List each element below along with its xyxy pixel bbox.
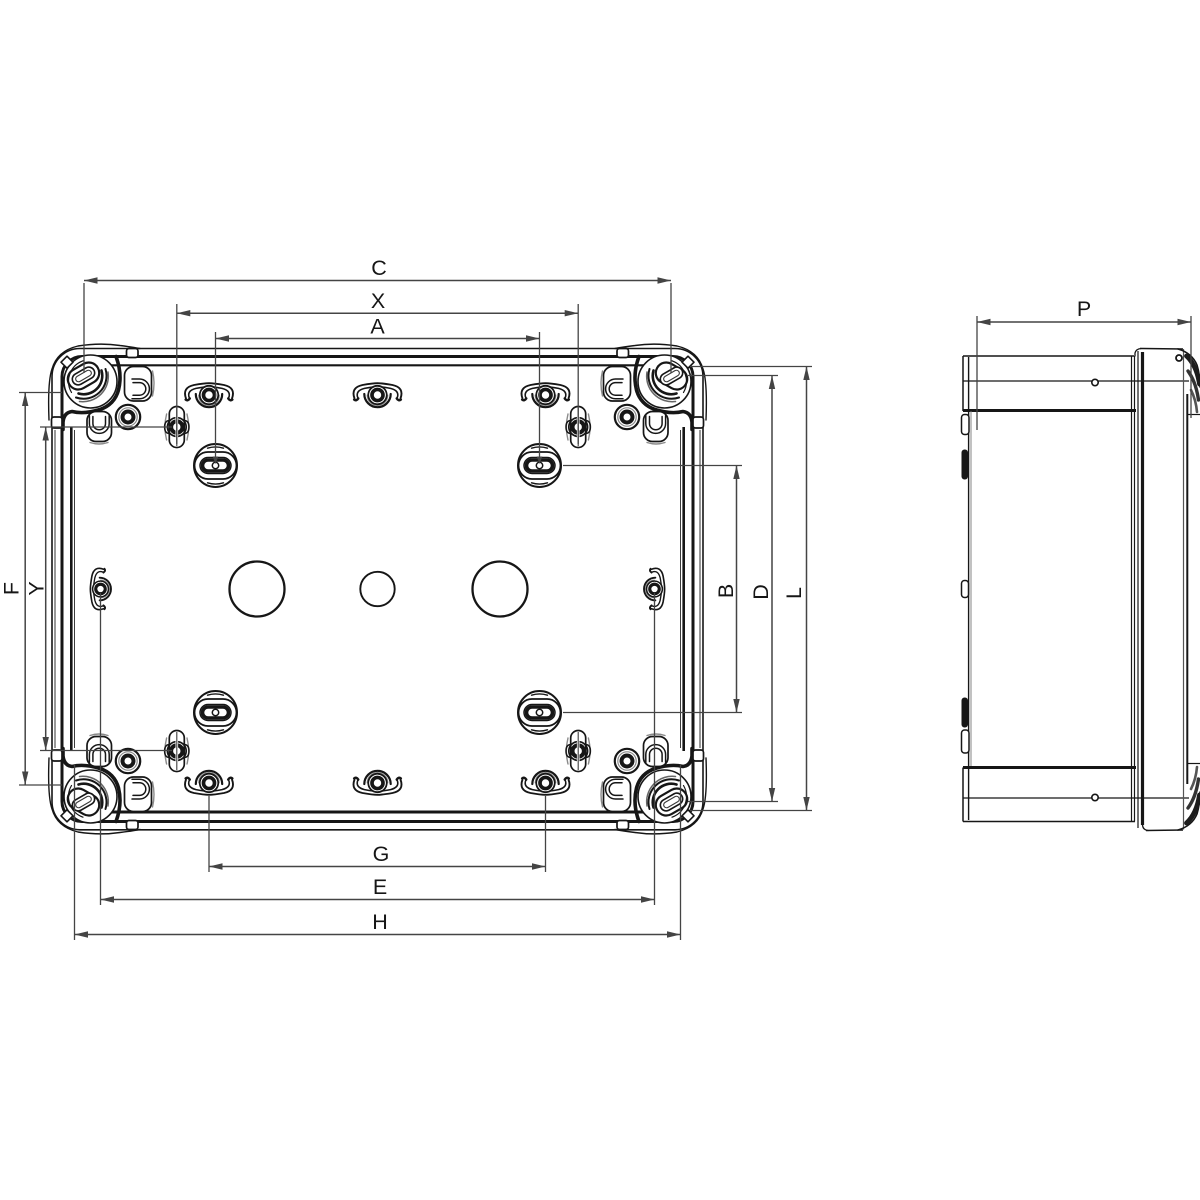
svg-text:E: E [373, 875, 387, 899]
svg-text:F: F [0, 582, 24, 595]
svg-text:A: A [370, 315, 385, 339]
svg-text:H: H [372, 910, 388, 934]
svg-text:D: D [749, 584, 773, 600]
svg-text:X: X [371, 289, 385, 313]
svg-text:Y: Y [25, 581, 49, 595]
svg-text:C: C [371, 256, 387, 280]
svg-text:B: B [714, 584, 738, 598]
svg-text:G: G [373, 842, 390, 866]
svg-text:P: P [1077, 297, 1091, 321]
svg-text:L: L [782, 587, 806, 599]
